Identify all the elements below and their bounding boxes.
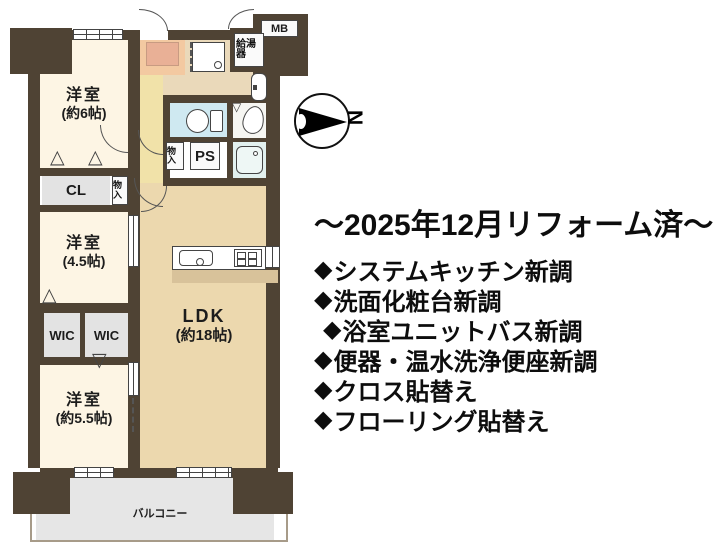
pipe-space: PS <box>190 142 220 170</box>
hallway-floor <box>140 75 163 183</box>
renovation-item: ◆洗面化粧台新調 <box>314 284 716 314</box>
folding-door-mark-4: ▽ <box>92 351 107 370</box>
closet-cl: CL <box>42 176 110 205</box>
folding-door-mark-2: △ <box>88 148 103 167</box>
renovation-item: ◆フローリング貼替え <box>314 404 716 434</box>
room-label-ldk: LDK (約18帖) <box>142 300 266 350</box>
renovation-item: ◆便器・温水洗浄便座新調 <box>314 344 716 374</box>
shoe-cabinet <box>146 42 179 66</box>
diamond-bullet-icon: ◆ <box>314 405 332 434</box>
storage-upper: 物入 <box>112 176 128 205</box>
floorplan-page: { "headline": { "text": "～2025年12月リフォーム済… <box>0 0 719 559</box>
wall-bottom-left-block <box>13 472 70 514</box>
compass-north-label: N <box>346 110 366 130</box>
folding-door-mark-bath: ▽ <box>232 101 241 113</box>
renovation-item: ◆システムキッチン新調 <box>314 254 716 284</box>
bedroom45-name: 洋室 <box>66 235 102 253</box>
door-arc-entrance <box>139 9 168 31</box>
wic-left-label: WIC <box>49 328 74 343</box>
wall-under-cl <box>40 205 128 212</box>
kitchen-counter-step <box>172 270 278 283</box>
bedroom55-name: 洋室 <box>66 392 102 410</box>
wall-left <box>28 40 40 468</box>
water-heater: 給湯器 <box>234 33 264 67</box>
diamond-bullet-icon: ◆ <box>323 315 341 344</box>
renovation-item: ◆クロス貼替え <box>314 374 716 404</box>
storage-upper-label: 物入 <box>113 181 127 200</box>
toilet-tank-icon <box>210 110 223 132</box>
renovation-list: ◆システムキッチン新調 ◆洗面化粧台新調 ◆浴室ユニットバス新調 ◆便器・温水洗… <box>314 254 716 434</box>
ldk-size: (約18帖) <box>176 327 233 344</box>
bathtub-icon <box>236 146 263 174</box>
wall-dashed-bedroom55 <box>132 398 134 432</box>
mb-label: MB <box>271 23 288 35</box>
balcony-label: バルコニー <box>100 505 220 521</box>
toilet-bowl-icon <box>186 109 209 133</box>
stove-burner-icon <box>237 259 246 266</box>
sliding-door-bedroom55 <box>128 362 139 396</box>
stove-burner-icon <box>248 259 257 266</box>
wall-bottom-right-block <box>233 472 293 514</box>
wall-bath-left <box>227 103 233 186</box>
compass-hub <box>296 114 306 129</box>
room-label-bedroom6: 洋室 (約6帖) <box>40 80 128 128</box>
storage-lower: 物入 <box>166 142 184 170</box>
north-text: N <box>343 110 366 125</box>
renovation-item: ◆浴室ユニットバス新調 <box>314 314 716 344</box>
wic-right-label: WIC <box>94 328 119 343</box>
water-heater-label: 給湯器 <box>236 40 262 61</box>
washing-machine-icon <box>192 42 225 72</box>
stove-icon <box>234 249 262 267</box>
ps-label: PS <box>195 148 215 165</box>
wall-toilet-left <box>163 95 170 186</box>
front-door-icon <box>251 73 267 101</box>
kitchen-faucet-icon <box>196 258 204 266</box>
compass: N <box>290 90 370 152</box>
stove-burner-icon <box>237 252 246 259</box>
diamond-bullet-icon: ◆ <box>314 375 332 404</box>
diamond-bullet-icon: ◆ <box>314 255 332 284</box>
wall-under-bedroom6 <box>40 168 128 176</box>
wall-bath-mid <box>230 138 266 142</box>
stove-burner-icon <box>248 252 257 259</box>
door-handle-icon <box>253 85 257 90</box>
bedroom6-name: 洋室 <box>66 87 102 105</box>
diamond-bullet-icon: ◆ <box>314 345 332 374</box>
renovation-panel: ～2025年12月リフォーム済～ ◆システムキッチン新調 ◆洗面化粧台新調 ◆浴… <box>314 200 716 434</box>
storage-lower-label: 物入 <box>167 147 183 166</box>
door-arc-heater <box>228 9 254 29</box>
meter-box: MB <box>261 20 298 37</box>
washer-drain-icon <box>214 61 222 69</box>
bathtub-drain-icon <box>253 151 258 156</box>
window-bedroom55-bottom <box>74 467 114 478</box>
wall-ldk-top <box>163 178 266 186</box>
diamond-bullet-icon: ◆ <box>314 285 332 314</box>
closet-cl-label: CL <box>66 182 86 199</box>
window-kitchen-right <box>265 246 280 268</box>
sliding-door-bedroom45 <box>128 215 139 267</box>
wall-top-b <box>122 30 140 40</box>
ldk-name: LDK <box>183 306 226 327</box>
wall-top-a <box>40 30 75 40</box>
bedroom55-size: (約5.5帖) <box>56 410 113 426</box>
bedroom45-size: (4.5帖) <box>63 253 106 269</box>
window-bedroom6-top <box>73 29 123 40</box>
room-label-bedroom55: 洋室 (約5.5帖) <box>40 385 128 433</box>
renovation-item-text: フローリング貼替え <box>333 402 549 437</box>
room-label-bedroom45: 洋室 (4.5帖) <box>40 228 128 276</box>
closet-wic-left: WIC <box>44 313 80 357</box>
wall-top-c <box>168 30 235 40</box>
window-ldk-bottom <box>176 467 232 478</box>
folding-door-mark-1: △ <box>50 148 65 167</box>
folding-door-mark-3: △ <box>42 286 57 305</box>
bedroom6-size: (約6帖) <box>61 105 106 121</box>
balcony-text: バルコニー <box>133 505 188 521</box>
renovation-headline: ～2025年12月リフォーム済～ <box>314 200 716 244</box>
